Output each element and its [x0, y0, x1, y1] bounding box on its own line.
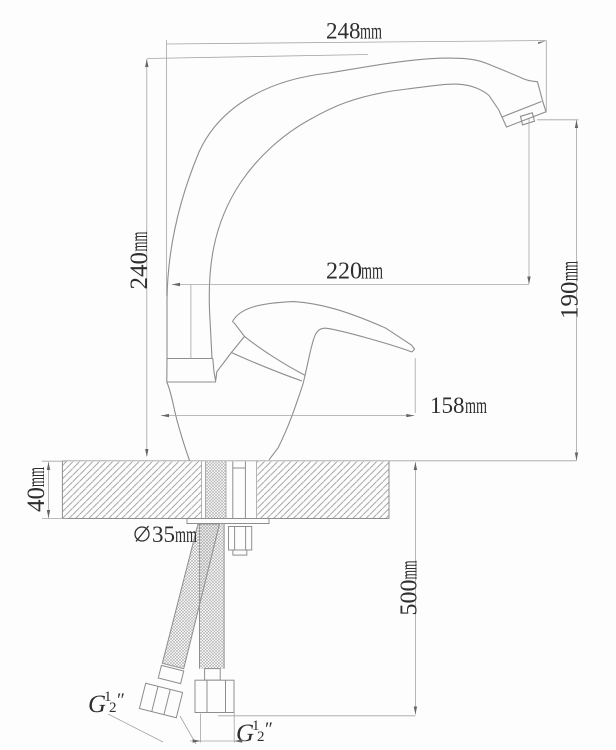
svg-text:mm: mm	[175, 522, 197, 547]
svg-text:500: 500	[397, 580, 423, 616]
svg-text:″: ″	[265, 719, 273, 740]
svg-text:190: 190	[557, 282, 584, 320]
svg-text:″: ″	[117, 690, 125, 711]
svg-text:248: 248	[326, 19, 361, 44]
svg-text:35: 35	[152, 522, 175, 547]
svg-text:mm: mm	[23, 467, 50, 487]
svg-text:mm: mm	[126, 231, 153, 251]
svg-text:158: 158	[430, 393, 465, 418]
svg-text:40: 40	[23, 487, 50, 512]
svg-text:mm: mm	[465, 393, 487, 418]
svg-text:mm: mm	[361, 259, 383, 285]
svg-text:mm: mm	[397, 560, 423, 579]
svg-text:220: 220	[326, 259, 362, 285]
svg-text:240: 240	[126, 252, 153, 290]
svg-text:mm: mm	[360, 19, 382, 44]
svg-text:2: 2	[257, 729, 265, 745]
svg-text:mm: mm	[557, 261, 584, 281]
svg-text:2: 2	[109, 700, 117, 716]
